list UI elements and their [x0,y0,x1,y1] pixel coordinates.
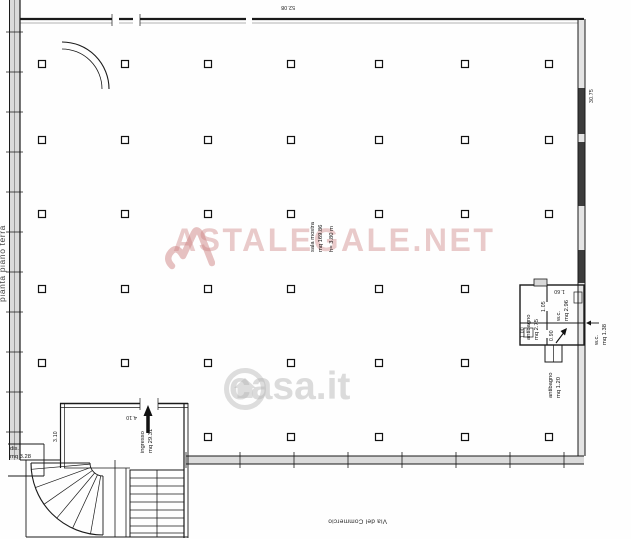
column-marker [462,434,469,441]
column-marker [205,61,212,68]
room-ingresso-area: mq 29.31 [148,429,154,453]
column-marker [205,286,212,293]
column-marker [39,137,46,144]
column-marker [39,211,46,218]
column-marker [376,434,383,441]
floor-plan-screenshot: ASTALEGALE.NET casa.it [0,0,631,539]
column-marker [39,360,46,367]
column-marker [288,211,295,218]
room-antibagno-top-area: mq 2.75 [534,319,540,340]
column-marker [376,286,383,293]
room-antibagno-top-name: antibagno [526,315,532,340]
plan-side-title: pianta piano terra [0,225,8,302]
room-wc-top-name: w.c. [556,311,562,321]
room-wc-right-area: mq 1.38 [602,324,608,345]
column-marker [122,286,129,293]
dimension-building-depth: 30.75 [589,89,596,103]
column-marker [462,137,469,144]
dimension-wc-width: 1.60 [554,287,565,294]
room-sala-area: mq 169.86 [318,225,324,252]
column-marker [288,137,295,144]
column-marker [546,61,553,68]
column-marker [462,211,469,218]
floor-plan-drawing [0,0,631,539]
room-label-ingresso: ingresso mq 29.31 [140,429,155,453]
column-marker [376,360,383,367]
column-marker [205,434,212,441]
column-marker [122,211,129,218]
room-dis-name: dis. [10,446,19,452]
column-marker [376,137,383,144]
room-wc-top-area: mq 2.96 [564,300,570,321]
room-sala-name: sala mostra [310,222,316,252]
column-marker [462,61,469,68]
room-label-wc-top: w.c. mq 2.96 [556,300,571,321]
room-wc-right-name: w.c. [594,335,600,345]
column-marker [546,211,553,218]
column-marker [122,360,129,367]
column-marker [205,137,212,144]
column-marker [39,286,46,293]
column-marker [122,137,129,144]
column-marker [39,61,46,68]
room-label-wc-right: w.c. mq 1.38 [594,324,609,345]
column-marker [376,61,383,68]
room-ingresso-name: ingresso [140,431,146,453]
column-marker [288,61,295,68]
column-marker [288,434,295,441]
column-marker [546,434,553,441]
dimension-a: 1.05 [541,301,548,312]
room-label-sala-mostra: sala mostra mq 169.86 h= 3.80 m [310,222,337,252]
dimension-b: 1.00 [520,327,527,338]
column-marker [205,211,212,218]
column-marker [462,286,469,293]
room-label-antibagno-top: antibagno mq 2.75 [526,315,541,340]
room-label-antibagno-bottom: antibagno mq 1.20 [548,373,563,398]
dimension-entrance-width: 4.10 [126,413,137,420]
column-marker [205,360,212,367]
dimension-entrance-depth: 3.10 [53,431,60,442]
dimension-c: 0.90 [549,330,556,341]
room-label-dis: dis. mq 3.28 [10,446,31,461]
street-name-label: Via del Commercio [328,516,387,524]
column-marker [546,137,553,144]
room-antibagno-bottom-area: mq 1.20 [556,377,562,398]
column-marker [462,360,469,367]
room-dis-area: mq 3.28 [10,454,31,460]
column-marker [122,61,129,68]
column-marker [288,360,295,367]
dimension-building-width: 52.08 [281,3,295,10]
column-marker [288,286,295,293]
room-sala-height: h= 3.80 m [329,222,337,252]
column-marker [376,211,383,218]
room-antibagno-bottom-name: antibagno [548,373,554,398]
